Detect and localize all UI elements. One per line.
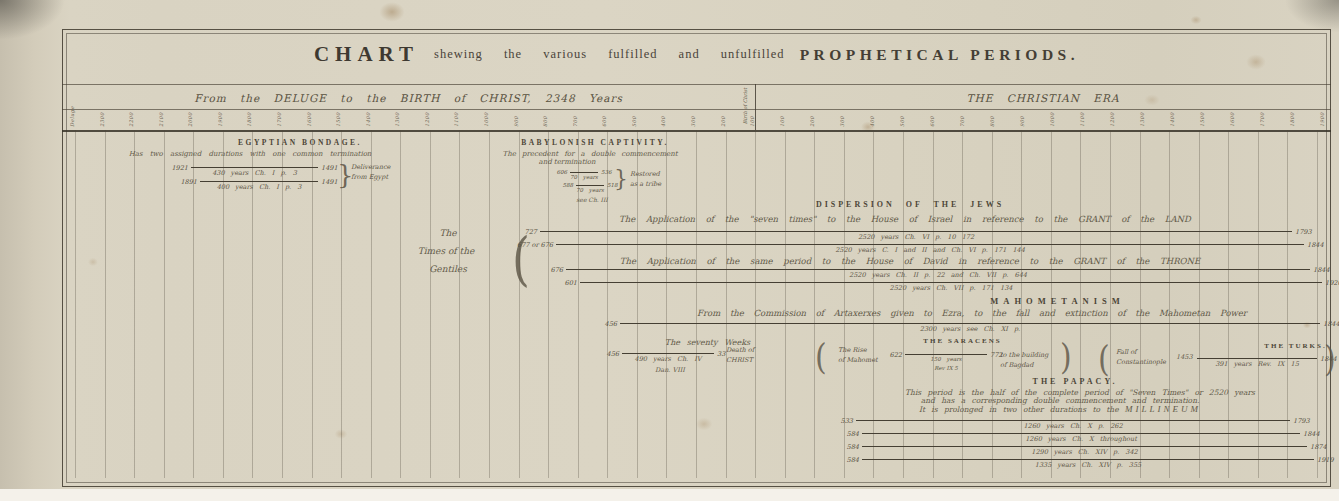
tick-label: 1300 bbox=[1139, 112, 1145, 127]
duration-label: 400 years Ch. I p. 3 bbox=[200, 183, 318, 191]
babylonish-captivity-header: BABYLONISH CAPTIVITY. bbox=[470, 138, 720, 147]
title-prophetical-periods: PROPHETICAL PERIODS. bbox=[800, 46, 1079, 63]
period-line-david-601: 601 1920 2520 years Ch. VII p. 171 134 bbox=[580, 282, 1322, 283]
gentiles-label-line1: The bbox=[418, 228, 478, 238]
year-start: 533 bbox=[841, 417, 853, 425]
tick-label: 800 bbox=[989, 116, 995, 127]
tick-band: Deluge2300220021002000190018001700160015… bbox=[62, 108, 1331, 132]
tick-label: 1100 bbox=[453, 112, 459, 127]
year-start: 1891 bbox=[180, 178, 197, 186]
tick-label: 1600 bbox=[1229, 112, 1235, 127]
duration-label: 430 years Ch. I p. 3 bbox=[191, 169, 318, 177]
tick-label: 800 bbox=[542, 116, 548, 127]
millineum-label: MILLINEUM bbox=[1125, 404, 1201, 414]
death-note-line2: CHRIST bbox=[726, 355, 754, 365]
rise-of-mahomet-note: The Rise of Mahomet bbox=[838, 345, 878, 365]
deliverance-note-line1: Deliverance bbox=[351, 162, 390, 172]
tick-label: 1900 bbox=[217, 112, 223, 127]
papacy-description-3-text: It is prolonged in two other durations t… bbox=[919, 405, 1119, 414]
period-line-egypt-430: 1921 1491 430 years Ch. I p. 3 bbox=[191, 167, 318, 168]
era-band-bc: From the DELUGE to the BIRTH of CHRIST, … bbox=[62, 84, 755, 110]
year-end: 1491 bbox=[321, 164, 338, 172]
tick-label: 1400 bbox=[365, 112, 371, 127]
tick-label: 1400 bbox=[1169, 112, 1175, 127]
fall-note-line2: Constantinople bbox=[1116, 357, 1166, 367]
tick-label: 1200 bbox=[1109, 112, 1115, 127]
duration-annotation: 2520 years C. I and II and Ch. VI p. 171… bbox=[556, 246, 1304, 254]
duration-label: 70 years bbox=[570, 174, 598, 180]
tick-label: 200 bbox=[720, 116, 726, 127]
tick-label: 700 bbox=[572, 116, 578, 127]
period-line-papacy-1260b: 584 1844 1260 years Ch. X throughout bbox=[862, 433, 1300, 434]
tick-label: 100 bbox=[779, 116, 785, 127]
tick-label: 1700 bbox=[276, 112, 282, 127]
title-word-chart: CHART bbox=[314, 42, 419, 66]
era-band-christian: THE CHRISTIAN ERA bbox=[755, 84, 1331, 110]
egyptian-bondage-header: EGYPTIAN BONDAGE. bbox=[170, 138, 430, 147]
year-end: 1874 bbox=[1310, 443, 1327, 451]
gentiles-label-line2: Times of the bbox=[398, 246, 494, 256]
year-start: 622 bbox=[890, 351, 902, 359]
year-end: 1844 bbox=[1303, 430, 1320, 438]
saracens-header: THE SARACENS bbox=[895, 337, 1030, 345]
tick-label: 1900 bbox=[1319, 112, 1325, 127]
period-line-papacy-1335: 584 1919 1335 years Ch. XIV p. 355 bbox=[862, 459, 1314, 460]
tick-label: 300 bbox=[839, 116, 845, 127]
egyptian-bondage-subtitle: Has two assigned durations with one comm… bbox=[82, 150, 418, 158]
duration-label: 391 years Rev. IX 15 bbox=[1197, 360, 1317, 368]
tick-label: 1000 bbox=[1049, 112, 1055, 127]
saracens-rev-reference: Rev IX 5 bbox=[910, 365, 982, 371]
period-line-saracens: 622 772 150 years bbox=[905, 354, 987, 355]
dispersion-header: DISPERSION OF THE JEWS bbox=[700, 200, 1120, 209]
tick-label: 2100 bbox=[158, 112, 164, 127]
duration-label: 150 years bbox=[905, 356, 987, 362]
tick-label: 900 bbox=[1019, 116, 1025, 127]
year-start: 588 bbox=[563, 182, 574, 188]
constantinople-year: 1453 bbox=[1176, 353, 1193, 361]
duration-annotation: 2520 years Ch. II p. 22 and Ch. VII p. 6… bbox=[566, 271, 1310, 279]
prophetical-periods-chart-scan: CHART shewing the various fulfilled and … bbox=[0, 0, 1339, 501]
tick-label: 1700 bbox=[1259, 112, 1265, 127]
period-line-papacy-1290: 584 1874 1290 years Ch. XIV p. 342 bbox=[862, 446, 1307, 447]
period-line-captivity-2: 588 518 70 years bbox=[576, 185, 604, 186]
year-end: 1844 bbox=[1323, 320, 1339, 328]
tick-label: 500 bbox=[631, 116, 637, 127]
period-line-david-676: 676 1844 2520 years Ch. II p. 22 and Ch.… bbox=[566, 269, 1310, 270]
bagdad-note: to the building of Bagdad bbox=[1000, 350, 1048, 370]
death-note-line1: Death of bbox=[726, 345, 754, 355]
mahometanism-header: MAHOMETANISM bbox=[950, 296, 1165, 306]
year-end: 536 bbox=[601, 169, 612, 175]
tick-label: 300 bbox=[690, 116, 696, 127]
year-end: 1793 bbox=[1295, 228, 1312, 236]
babylonish-subtitle-line1: The precedent for a double commencement bbox=[462, 150, 718, 158]
period-line-captivity-1: 606 536 70 years bbox=[570, 172, 598, 173]
year-start: 584 bbox=[847, 443, 859, 451]
tick-label: 2000 bbox=[187, 112, 193, 127]
year-start: 456 bbox=[607, 350, 619, 358]
restored-note: Restored as a tribe bbox=[630, 169, 661, 189]
tick-label: 400 bbox=[660, 116, 666, 127]
duration-annotation: 1290 years Ch. XIV p. 342 bbox=[862, 448, 1307, 456]
year-end: 1793 bbox=[1293, 417, 1310, 425]
period-line-2300-years: 456 1844 2300 years see Ch. XI p. bbox=[620, 323, 1320, 324]
restored-note-line1: Restored bbox=[630, 169, 661, 179]
tick-label: 700 bbox=[959, 116, 965, 127]
duration-label: 70 years bbox=[576, 187, 604, 193]
chart-title: CHART shewing the various fulfilled and … bbox=[62, 42, 1331, 67]
duration-annotation: 1335 years Ch. XIV p. 355 bbox=[862, 461, 1314, 469]
duration-annotation: 1260 years Ch. X throughout bbox=[862, 435, 1300, 443]
fall-note-line1: Fall of bbox=[1116, 347, 1166, 357]
turks-paren-close: ) bbox=[1324, 338, 1336, 378]
period-line-israel-676: 677 or 676 1844 2520 years C. I and II a… bbox=[556, 244, 1304, 245]
tick-label: 2200 bbox=[128, 112, 134, 127]
captivity-brace: } bbox=[614, 166, 628, 191]
period-line-egypt-400: 1891 1491 400 years Ch. I p. 3 bbox=[200, 181, 318, 182]
tick-label: 1000 bbox=[483, 112, 489, 127]
era-label-christian-era: THE CHRISTIAN ERA bbox=[966, 92, 1119, 104]
year-end: 1844 bbox=[1313, 266, 1330, 274]
period-line-seventy-weeks: 456 33 490 years Ch. IV bbox=[622, 353, 714, 354]
tick-label: 2300 bbox=[99, 112, 105, 127]
tick-label: 900 bbox=[513, 116, 519, 127]
year-end: 1919 bbox=[1317, 456, 1334, 464]
dispersion-application-1: The Application of the "seven times" to … bbox=[555, 214, 1255, 224]
tick-label: 500 bbox=[899, 116, 905, 127]
gentiles-label-line3: Gentiles bbox=[410, 264, 486, 274]
title-middle-text: shewing the various fulfilled and unfulf… bbox=[424, 47, 794, 61]
year-start: 601 bbox=[565, 279, 577, 287]
captivity-reference: see Ch. III bbox=[552, 196, 632, 203]
tick-label: 1800 bbox=[246, 112, 252, 127]
tick-label: 100 bbox=[749, 116, 755, 127]
tick-label: 1500 bbox=[1199, 112, 1205, 127]
tick-label: 1600 bbox=[306, 112, 312, 127]
year-start: 456 bbox=[605, 320, 617, 328]
year-start: 1921 bbox=[171, 164, 188, 172]
duration-label: 490 years Ch. IV bbox=[622, 355, 714, 363]
period-line-israel-727: 727 1793 2520 years Ch. VI p. 10 172 bbox=[540, 231, 1292, 232]
tick-label: 400 bbox=[869, 116, 875, 127]
year-start: 677 or 676 bbox=[517, 241, 553, 249]
bagdad-note-line2: of Bagdad bbox=[1000, 360, 1048, 370]
period-line-turks: 1844 391 years Rev. IX 15 bbox=[1197, 358, 1317, 359]
fall-of-constantinople-note: Fall of Constantinople bbox=[1116, 347, 1166, 367]
year-end: 33 bbox=[717, 350, 725, 358]
period-line-papacy-1260a: 533 1793 1260 years Ch. X p. 262 bbox=[856, 420, 1290, 421]
duration-annotation: 1260 years Ch. X p. 262 bbox=[856, 422, 1290, 430]
deliverance-note: Deliverance from Egypt bbox=[351, 162, 390, 182]
mahometanism-subtitle: From the Commission of Artaxerxes given … bbox=[622, 308, 1322, 318]
tick-label: Deluge bbox=[69, 106, 75, 127]
tick-label: 1500 bbox=[335, 112, 341, 127]
tick-label: 1200 bbox=[424, 112, 430, 127]
year-start: 727 bbox=[525, 228, 537, 236]
saracens-paren-open: ( bbox=[815, 336, 827, 376]
year-end: 1491 bbox=[321, 178, 338, 186]
papacy-header: THE PAPACY. bbox=[960, 377, 1190, 386]
tick-label: 600 bbox=[929, 116, 935, 127]
death-of-christ-note: Death of CHRIST bbox=[726, 345, 754, 365]
year-start: 606 bbox=[557, 169, 568, 175]
saracens-paren-close: ) bbox=[1060, 336, 1072, 376]
turks-paren-open: ( bbox=[1098, 338, 1110, 378]
rise-note-line1: The Rise bbox=[838, 345, 878, 355]
babylonish-subtitle-line2: and termination bbox=[492, 158, 642, 166]
duration-annotation: 2520 years Ch. VI p. 10 172 bbox=[540, 233, 1292, 241]
bagdad-note-line1: to the building bbox=[1000, 350, 1048, 360]
deliverance-note-line2: from Egypt bbox=[351, 172, 390, 182]
era-label-deluge-to-christ: From the DELUGE to the BIRTH of CHRIST, … bbox=[194, 92, 623, 104]
tick-label: 600 bbox=[601, 116, 607, 127]
duration-annotation: 2520 years Ch. VII p. 171 134 bbox=[580, 284, 1322, 292]
tick-label: 200 bbox=[809, 116, 815, 127]
year-start: 676 bbox=[551, 266, 563, 274]
papacy-description-3: It is prolonged in two other durations t… bbox=[840, 404, 1280, 414]
seventy-weeks-title: The seventy Weeks bbox=[640, 338, 775, 347]
tick-label: 1300 bbox=[394, 112, 400, 127]
restored-note-line2: as a tribe bbox=[630, 179, 661, 189]
year-start: 584 bbox=[847, 430, 859, 438]
dispersion-application-2: The Application of the same period to th… bbox=[560, 256, 1260, 266]
tick-label: 1800 bbox=[1289, 112, 1295, 127]
year-start: 584 bbox=[847, 456, 859, 464]
rise-note-line2: of Mahomet bbox=[838, 355, 878, 365]
daniel-reference: Dan. VIII bbox=[630, 366, 710, 374]
year-end: 1920 bbox=[1325, 279, 1339, 287]
duration-annotation: 2300 years see Ch. XI p. bbox=[620, 325, 1320, 333]
tick-label: 1100 bbox=[1079, 112, 1085, 127]
year-end: 1844 bbox=[1307, 241, 1324, 249]
